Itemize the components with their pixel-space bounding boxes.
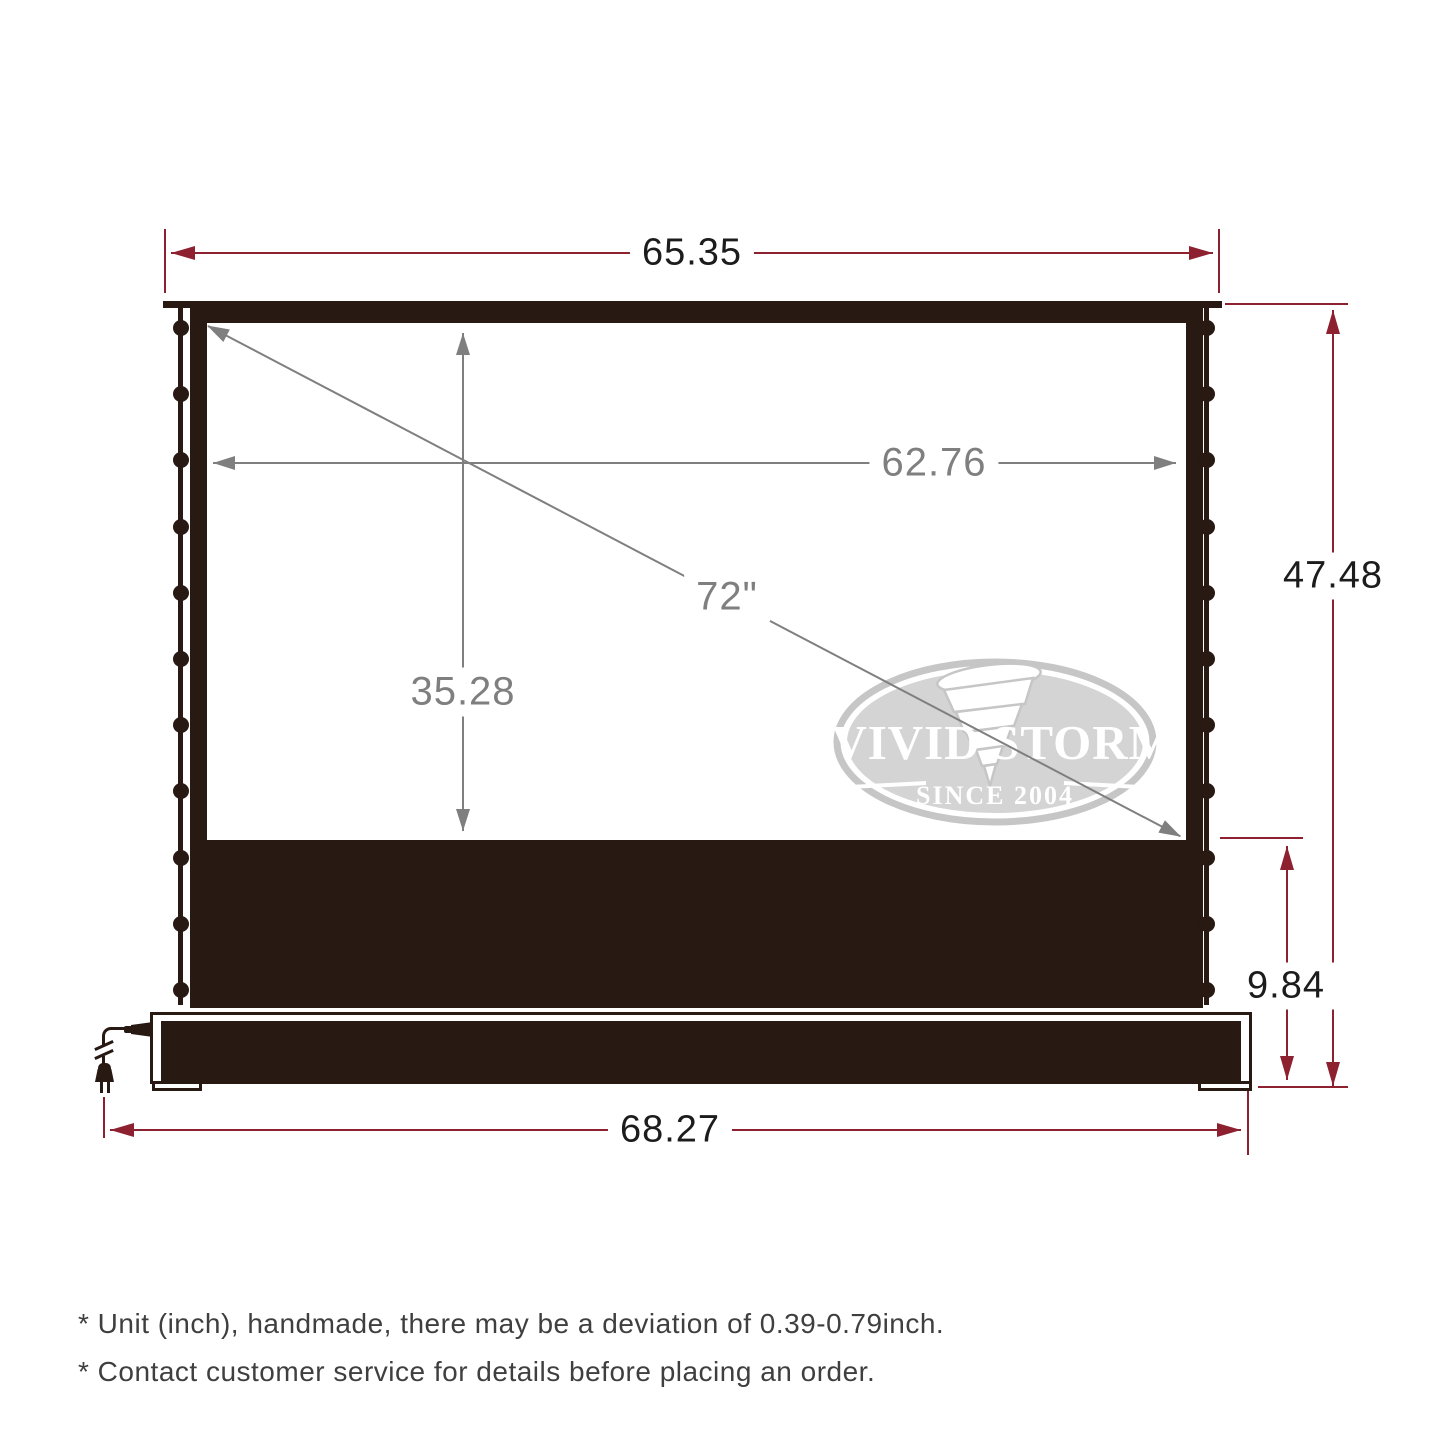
- side-tab: [1199, 320, 1215, 336]
- side-tab: [173, 320, 189, 336]
- total-height-label: 47.48: [1271, 553, 1395, 600]
- plug-prong: [100, 1082, 103, 1093]
- side-tab: [1199, 585, 1215, 601]
- viewable-width-label: 62.76: [869, 439, 998, 488]
- top-width-label: 65.35: [630, 230, 754, 277]
- plug-prong: [107, 1082, 110, 1093]
- side-tab: [173, 585, 189, 601]
- logo-brand-left: VIVID: [831, 715, 980, 770]
- footnote-unit: * Unit (inch), handmade, there may be a …: [78, 1308, 944, 1340]
- diagonal-label: 72": [684, 573, 770, 622]
- footnote-contact: * Contact customer service for details b…: [78, 1356, 944, 1388]
- side-tab: [173, 386, 189, 402]
- side-tab: [1199, 717, 1215, 733]
- logo-tagline: SINCE 2004: [916, 781, 1074, 810]
- side-tab: [1199, 916, 1215, 932]
- side-tab: [173, 651, 189, 667]
- side-tab: [173, 452, 189, 468]
- side-tab: [173, 850, 189, 866]
- logo-brand-right: STORM: [992, 715, 1162, 770]
- side-tab: [1199, 519, 1215, 535]
- side-tab: [1199, 452, 1215, 468]
- vividstorm-logo: VIVID STORM SINCE 2004: [828, 656, 1162, 828]
- power-plug-body: [95, 1069, 114, 1082]
- floor-base-unit: [150, 1012, 1252, 1084]
- viewable-height-label: 35.28: [398, 668, 527, 717]
- side-tab: [1199, 783, 1215, 799]
- footnotes: * Unit (inch), handmade, there may be a …: [78, 1308, 944, 1404]
- screen-top-bar: [190, 301, 1203, 323]
- side-tab: [173, 916, 189, 932]
- base-front-panel: [161, 1021, 1241, 1081]
- side-tab: [1199, 651, 1215, 667]
- riser-height-label: 9.84: [1235, 963, 1337, 1010]
- side-tab: [173, 982, 189, 998]
- side-tab: [173, 717, 189, 733]
- side-tab: [1199, 386, 1215, 402]
- side-tab: [1199, 982, 1215, 998]
- side-tab: [173, 783, 189, 799]
- side-tab: [1199, 850, 1215, 866]
- diagram-canvas: VIVID STORM SINCE 2004 62.76 35.28 72" 6…: [0, 0, 1445, 1445]
- side-tab: [173, 519, 189, 535]
- base-width-label: 68.27: [608, 1107, 732, 1154]
- screen-black-drop: [190, 840, 1203, 1008]
